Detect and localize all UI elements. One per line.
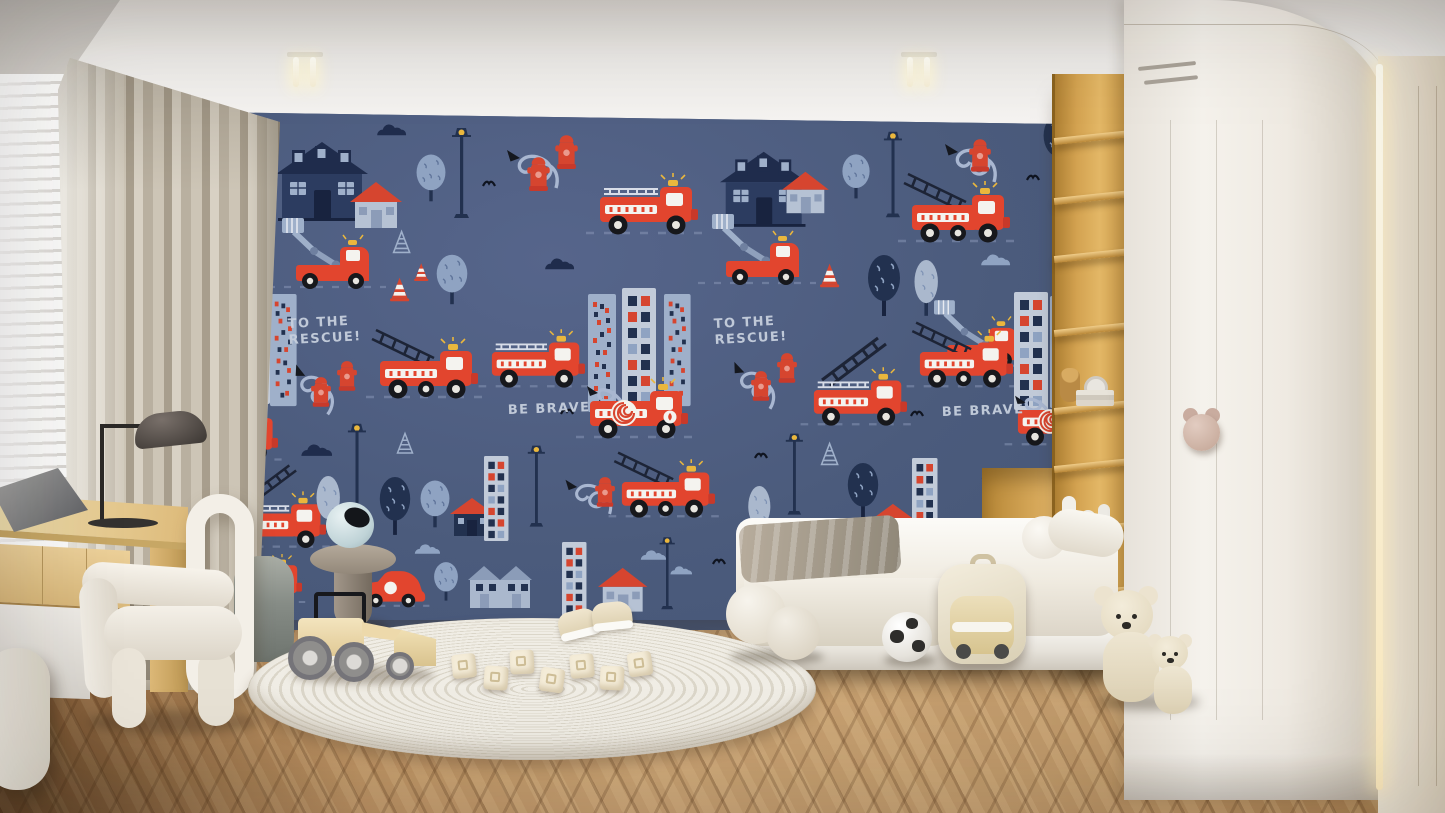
mural-motif-lamp <box>528 446 545 527</box>
letter-block <box>626 650 653 677</box>
soccer-patch <box>912 640 925 652</box>
mural-motif-cloud-pale <box>981 254 1010 265</box>
mural-motif-tree-dark <box>868 255 900 316</box>
mural-motif-truck-engine <box>479 329 597 387</box>
mural-motif-truck-ladder <box>609 453 727 518</box>
mural-motif-truck-engine <box>586 173 710 235</box>
bear-body <box>1154 666 1192 714</box>
bear-eye <box>1132 614 1137 619</box>
mural-motif-cone <box>390 278 409 302</box>
shelf-board <box>1054 130 1132 145</box>
book-stack <box>1076 390 1114 406</box>
teddy-bear-small <box>1146 634 1200 714</box>
bear-head <box>1152 636 1188 670</box>
shelf-board <box>1054 190 1132 205</box>
shelf-board <box>1054 322 1132 337</box>
wardrobe-seam <box>1170 120 1171 720</box>
light-canopy <box>901 52 937 57</box>
letter-block <box>509 649 534 674</box>
letter-block <box>569 653 595 679</box>
ceiling-light-right <box>901 52 937 94</box>
bear-eye <box>1116 614 1121 619</box>
wardrobe-seam <box>1262 120 1263 720</box>
letter-block <box>451 653 477 679</box>
side-table-top <box>310 544 396 574</box>
gray-blanket <box>738 514 902 583</box>
mural-motif-bird <box>713 560 725 564</box>
mural-text-rescue-2: TO THERESCUE! <box>713 313 787 348</box>
bear-nose <box>1167 658 1174 663</box>
mural-motif-tree-round <box>421 481 450 528</box>
block-mark <box>516 656 527 667</box>
mural-motif-house-navy <box>276 142 368 221</box>
mural-motif-rowhouse <box>468 566 532 608</box>
light-canopy <box>287 52 323 57</box>
mural-motif-hydrant <box>337 361 357 391</box>
mural-motif-building-dots <box>664 294 691 406</box>
mural-motif-bird <box>1027 176 1039 180</box>
light-tube <box>310 57 316 87</box>
ball-cushion <box>766 606 820 660</box>
baby-sneaker <box>591 600 633 630</box>
mural-motif-hydrant <box>969 139 991 171</box>
bear-eye <box>1162 652 1166 656</box>
toy-loader <box>288 592 438 686</box>
block-mark <box>633 658 644 669</box>
mural-motif-hydrant <box>751 371 771 401</box>
mural-motif-lamp <box>452 128 471 218</box>
mural-motif-lamp <box>348 424 366 510</box>
mural-motif-hydrant <box>311 377 331 407</box>
mural-motif-building-grid <box>484 456 508 541</box>
soccer-patch <box>906 618 918 629</box>
mural-motif-truck-ladder <box>366 330 490 399</box>
mural-motif-cloud-navy <box>545 258 574 269</box>
wardrobe-floor-shadow <box>1124 754 1386 800</box>
light-tube <box>293 57 299 87</box>
letter-block <box>538 666 565 693</box>
tubular-armchair <box>82 492 262 728</box>
led-strip-light <box>1376 64 1383 790</box>
bedroom-photo: TO THERESCUE! TO THERESCUE! BE BRAVE BE … <box>0 0 1445 813</box>
block-mark <box>606 672 617 683</box>
shelf-board <box>1054 458 1132 473</box>
letter-block <box>483 665 509 691</box>
mural-motif-ladder <box>822 338 886 386</box>
bear-handle-face <box>1183 414 1220 451</box>
block-mark <box>490 672 501 683</box>
bear-handle <box>1182 408 1222 452</box>
mural-motif-building-dots <box>270 294 297 406</box>
shelf-board <box>1054 248 1132 263</box>
letter-block <box>599 665 624 690</box>
mural-motif-cloud-pale <box>670 566 692 574</box>
mural-motif-bird <box>911 412 923 416</box>
light-tube <box>907 57 913 87</box>
mural-motif-lamp <box>884 132 902 218</box>
chair-right-leg <box>198 650 234 726</box>
toy-loader-wheel <box>288 636 332 680</box>
block-mark <box>575 660 586 671</box>
mural-motif-tree-round <box>842 154 869 198</box>
accent-wall-panels <box>1378 56 1445 813</box>
backpack-stripe <box>952 622 1012 632</box>
mural-motif-truck-engine <box>801 367 919 425</box>
block-mark <box>457 660 468 671</box>
mural-motif-truck-bucket <box>268 218 386 289</box>
mural-motif-hose-curl <box>725 362 780 409</box>
soccer-patch <box>890 630 904 643</box>
light-tube <box>924 57 930 87</box>
bear-eye <box>1174 652 1178 656</box>
panel-line <box>1418 86 1419 786</box>
mural-motif-cone <box>820 264 839 288</box>
backpack-wheel-motif <box>994 644 1009 659</box>
mural-motif-cloud-pale <box>641 550 666 559</box>
mural-motif-tree-dark <box>380 477 410 535</box>
bear-nose <box>1122 622 1131 629</box>
backpack-wheel-motif <box>956 644 971 659</box>
mural-motif-building-grid <box>622 288 656 406</box>
mural-motif-cone <box>414 263 428 281</box>
mural-motif-lamp <box>786 434 803 515</box>
toy-loader-wheel <box>334 642 374 682</box>
white-stool <box>0 648 50 790</box>
kids-backpack <box>938 562 1030 670</box>
mural-motif-cloud-navy <box>301 444 332 455</box>
mural-motif-cone-outline <box>398 434 413 454</box>
mural-motif-cone-outline <box>394 232 410 253</box>
mural-motif-tree-dark <box>848 463 878 521</box>
panel-line <box>1436 86 1437 786</box>
mural-motif-truck-ladder <box>898 174 1022 243</box>
mural-motif-bird <box>483 182 495 186</box>
mural-motif-cloud-navy <box>377 124 406 135</box>
mural-motif-tree-round <box>437 255 468 305</box>
mural-text-brave-2: BE BRAVE <box>942 402 1025 420</box>
mural-motif-tree-round <box>417 155 446 202</box>
mural-motif-hydrant <box>595 477 615 507</box>
toy-loader-wheel <box>386 652 414 680</box>
mural-motif-cone-outline <box>822 444 838 465</box>
mural-motif-building-grid <box>1014 292 1048 410</box>
mural-motif-bird <box>755 454 767 458</box>
soccer-ball <box>882 612 932 662</box>
mural-motif-hydrant <box>777 353 797 383</box>
mural-text-rescue-1: TO THERESCUE! <box>287 313 361 348</box>
mural-motif-cloud-pale <box>415 544 440 553</box>
block-mark <box>546 673 557 684</box>
ceiling-light-left <box>287 52 323 94</box>
chair-left-leg <box>112 648 146 728</box>
mural-motif-hydrant <box>555 135 578 169</box>
mural-text-brave-1: BE BRAVE <box>508 400 591 418</box>
